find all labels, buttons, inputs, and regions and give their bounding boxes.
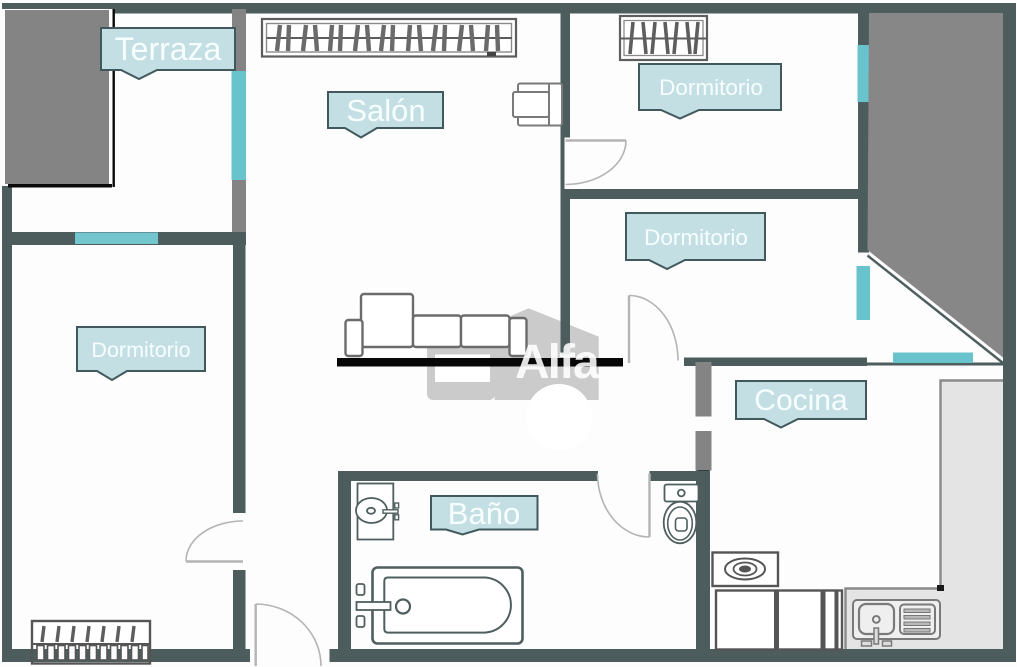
svg-text:Salón: Salón bbox=[346, 93, 425, 128]
svg-text:Terraza: Terraza bbox=[115, 31, 222, 67]
svg-text:Cocina: Cocina bbox=[754, 384, 848, 417]
svg-text:Alfa: Alfa bbox=[515, 336, 600, 389]
svg-text:Baño: Baño bbox=[448, 496, 520, 531]
svg-text:Dormitorio: Dormitorio bbox=[659, 75, 763, 100]
svg-text:Dormitorio: Dormitorio bbox=[644, 225, 748, 250]
svg-text:Dormitorio: Dormitorio bbox=[91, 338, 190, 362]
